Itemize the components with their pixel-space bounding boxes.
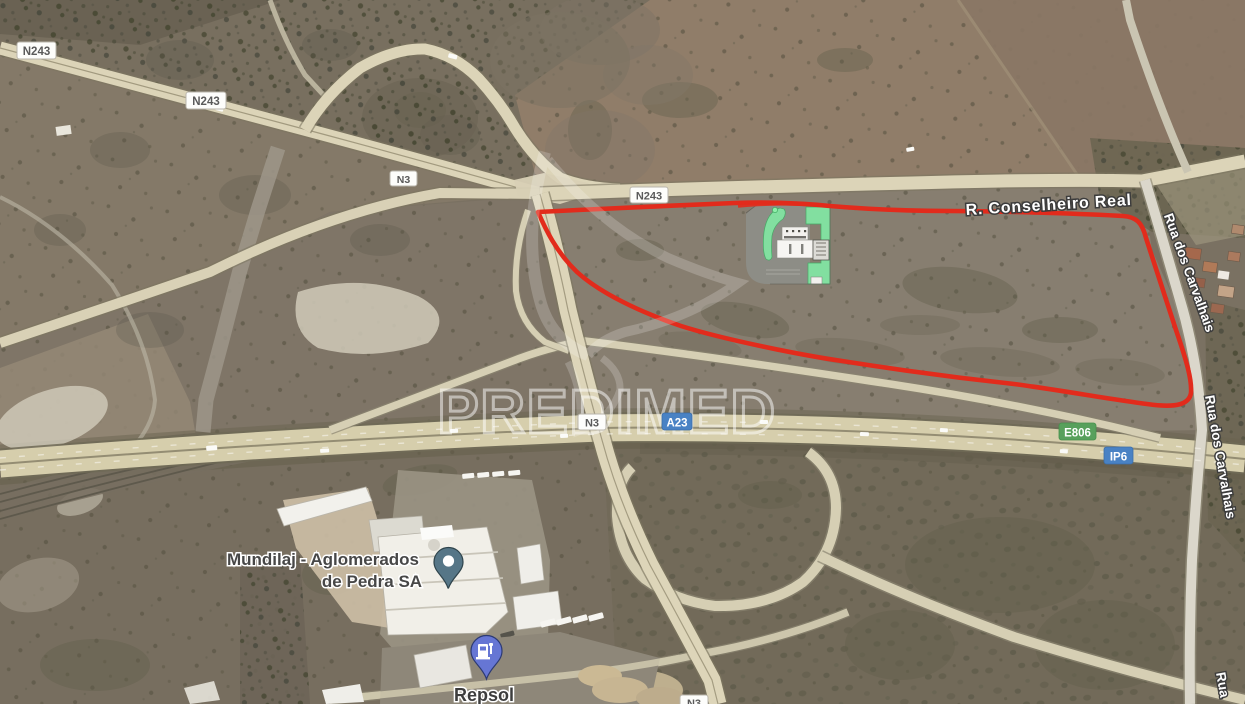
svg-text:Repsol: Repsol — [454, 685, 514, 704]
svg-text:N243: N243 — [636, 191, 662, 203]
svg-text:N3: N3 — [585, 418, 599, 430]
svg-text:IP6: IP6 — [1110, 452, 1127, 464]
svg-text:de Pedra SA: de Pedra SA — [322, 572, 422, 591]
svg-text:N3: N3 — [687, 698, 701, 704]
svg-text:E806: E806 — [1064, 428, 1091, 440]
svg-text:PREDIMED: PREDIMED — [437, 378, 776, 447]
svg-text:N243: N243 — [23, 46, 51, 58]
svg-text:N3: N3 — [397, 174, 411, 186]
svg-text:N243: N243 — [192, 96, 220, 108]
svg-text:A23: A23 — [666, 418, 687, 430]
svg-text:Mundilaj - Aglomerados: Mundilaj - Aglomerados — [227, 550, 419, 569]
